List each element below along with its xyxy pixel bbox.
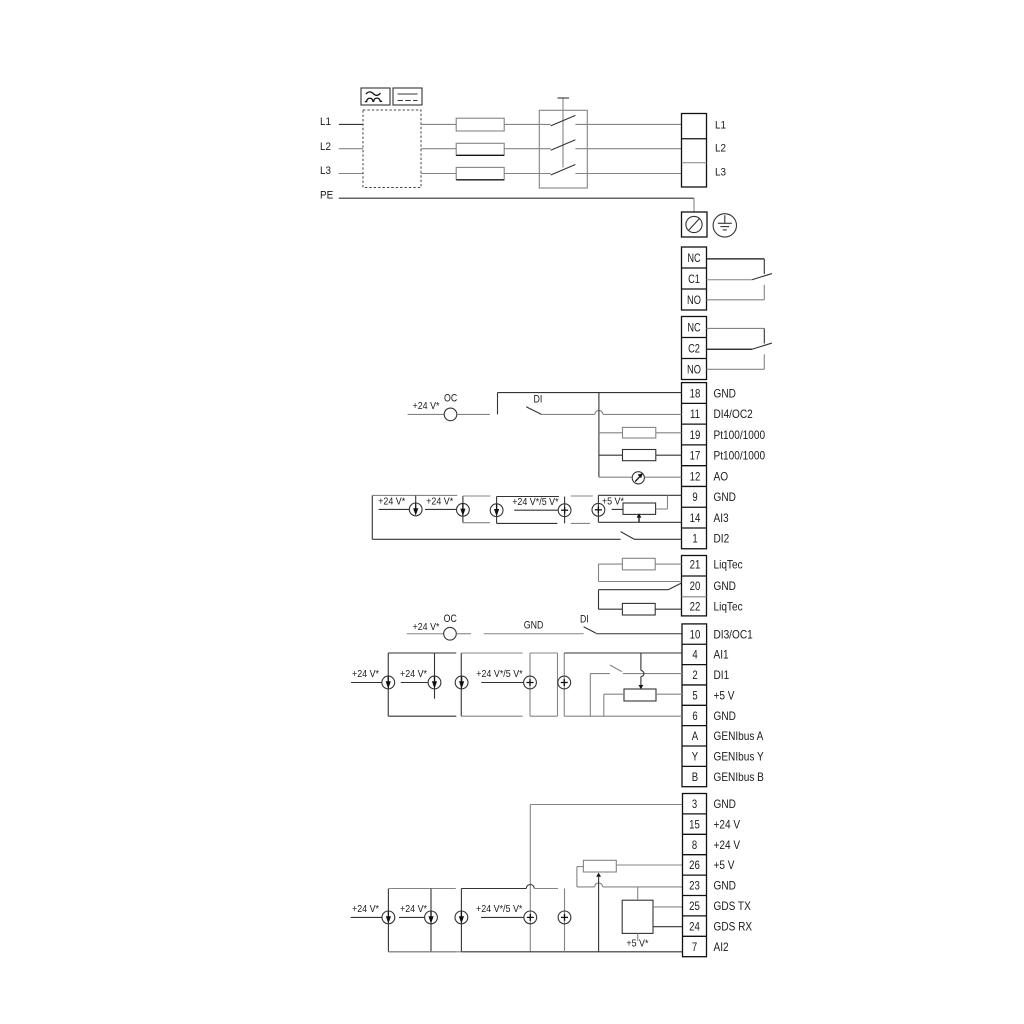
- svg-text:NC: NC: [687, 251, 701, 265]
- svg-text:+24 V*: +24 V*: [352, 903, 379, 915]
- svg-text:Pt100/1000: Pt100/1000: [714, 428, 766, 442]
- svg-text:19: 19: [690, 428, 701, 442]
- svg-text:DI: DI: [580, 613, 589, 625]
- svg-text:+5 V: +5 V: [714, 688, 735, 702]
- svg-text:+5 V: +5 V: [714, 858, 735, 872]
- svg-text:1: 1: [692, 532, 698, 546]
- svg-text:23: 23: [689, 879, 700, 893]
- svg-text:22: 22: [690, 600, 701, 614]
- svg-text:GND: GND: [714, 490, 737, 504]
- svg-text:PE: PE: [320, 190, 333, 202]
- svg-text:18: 18: [690, 386, 701, 400]
- svg-text:GND: GND: [714, 879, 737, 893]
- svg-text:GENIbus Y: GENIbus Y: [714, 749, 764, 763]
- svg-text:AI1: AI1: [714, 648, 729, 662]
- svg-text:26: 26: [689, 858, 700, 872]
- svg-text:L2: L2: [715, 143, 726, 155]
- svg-text:GENIbus B: GENIbus B: [714, 770, 764, 784]
- svg-text:14: 14: [690, 511, 701, 525]
- svg-text:NO: NO: [687, 293, 701, 307]
- svg-text:25: 25: [689, 899, 700, 913]
- svg-text:GDS TX: GDS TX: [714, 899, 751, 913]
- svg-text:+5 V*: +5 V*: [626, 937, 648, 949]
- svg-text:+24 V*/5 V*: +24 V*/5 V*: [512, 496, 558, 508]
- svg-text:+24 V*: +24 V*: [400, 668, 427, 680]
- svg-text:+24 V*/5 V*: +24 V*/5 V*: [476, 668, 522, 680]
- svg-text:L3: L3: [715, 167, 726, 179]
- svg-text:DI: DI: [534, 393, 543, 405]
- svg-text:GND: GND: [714, 579, 737, 593]
- svg-text:GENIbus A: GENIbus A: [714, 729, 764, 743]
- svg-text:LiqTec: LiqTec: [714, 600, 743, 614]
- svg-text:20: 20: [690, 579, 701, 593]
- svg-text:11: 11: [690, 407, 700, 421]
- svg-text:21: 21: [690, 558, 701, 572]
- svg-text:L3: L3: [320, 165, 331, 177]
- svg-text:GND: GND: [714, 797, 737, 811]
- svg-text:10: 10: [690, 627, 701, 641]
- svg-text:GND: GND: [714, 709, 737, 723]
- svg-text:A: A: [692, 729, 698, 743]
- svg-text:L1: L1: [320, 116, 331, 128]
- svg-text:+24 V*: +24 V*: [378, 496, 405, 508]
- svg-text:9: 9: [692, 490, 698, 504]
- svg-text:Pt100/1000: Pt100/1000: [714, 449, 766, 463]
- svg-text:+24 V*: +24 V*: [352, 668, 379, 680]
- svg-text:L1: L1: [715, 120, 726, 132]
- svg-text:GND: GND: [524, 619, 544, 631]
- svg-text:+24 V*/5 V*: +24 V*/5 V*: [476, 903, 522, 915]
- svg-text:+24 V*: +24 V*: [400, 903, 427, 915]
- svg-text:7: 7: [692, 940, 698, 954]
- svg-text:NO: NO: [687, 362, 701, 376]
- svg-text:+24 V*: +24 V*: [413, 621, 440, 633]
- svg-text:DI1: DI1: [714, 668, 730, 682]
- svg-text:3: 3: [692, 797, 698, 811]
- svg-text:DI3/OC1: DI3/OC1: [714, 627, 753, 641]
- svg-text:17: 17: [690, 449, 701, 463]
- svg-text:6: 6: [692, 709, 698, 723]
- svg-text:5: 5: [692, 688, 698, 702]
- svg-text:+5 V*: +5 V*: [602, 496, 624, 508]
- svg-text:C2: C2: [688, 341, 700, 355]
- svg-text:AO: AO: [714, 469, 729, 483]
- svg-text:OC: OC: [444, 613, 457, 625]
- svg-text:+24 V*: +24 V*: [413, 400, 440, 412]
- svg-text:OC: OC: [444, 392, 457, 404]
- svg-text:AI2: AI2: [714, 940, 729, 954]
- svg-text:C1: C1: [688, 272, 700, 286]
- svg-text:Y: Y: [692, 749, 698, 763]
- svg-text:+24 V*: +24 V*: [426, 496, 453, 508]
- svg-text:NC: NC: [687, 320, 701, 334]
- svg-text:24: 24: [689, 919, 700, 933]
- svg-text:2: 2: [692, 668, 698, 682]
- svg-text:B: B: [692, 770, 698, 784]
- svg-text:GND: GND: [714, 386, 737, 400]
- svg-text:15: 15: [689, 817, 700, 831]
- svg-text:+24 V: +24 V: [714, 817, 741, 831]
- svg-text:L2: L2: [320, 141, 331, 153]
- svg-text:+24 V: +24 V: [714, 838, 741, 852]
- svg-text:LiqTec: LiqTec: [714, 558, 743, 572]
- svg-text:4: 4: [692, 648, 698, 662]
- svg-text:DI4/OC2: DI4/OC2: [714, 407, 753, 421]
- svg-text:12: 12: [690, 469, 701, 483]
- svg-text:GDS RX: GDS RX: [714, 919, 753, 933]
- svg-text:8: 8: [692, 838, 698, 852]
- svg-text:DI2: DI2: [714, 532, 730, 546]
- svg-text:AI3: AI3: [714, 511, 729, 525]
